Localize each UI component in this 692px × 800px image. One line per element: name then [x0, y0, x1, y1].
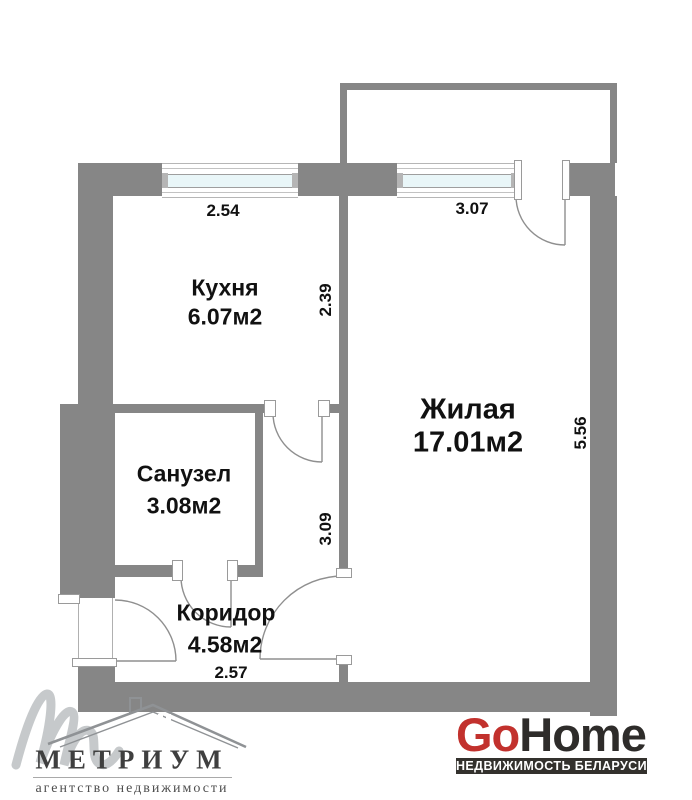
- dim-living-depth: 5.56: [571, 416, 591, 449]
- living-name: Жилая: [420, 394, 516, 427]
- metrium-tagline: агентство недвижимости: [35, 781, 228, 797]
- gohome-go: Go: [456, 708, 519, 761]
- house-window-dot: [158, 714, 163, 721]
- metrium-divider: [33, 777, 232, 778]
- gohome-wordmark: GoHome: [456, 711, 646, 758]
- balcony-door-post: [514, 160, 522, 200]
- living-area: 17.01м2: [413, 427, 523, 460]
- gohome-badge-text: НЕДВИЖИМОСТЬ БЕЛАРУСИ: [456, 759, 647, 773]
- balcony-door-arc: [516, 196, 565, 245]
- dim-hall-depth: 3.09: [316, 512, 336, 545]
- kitchen-door-post: [318, 400, 330, 417]
- metrium-logo: МЕТРИУМ агентство недвижимости: [10, 683, 260, 800]
- house-window-dot: [158, 725, 163, 732]
- bathroom-door-post: [172, 560, 183, 581]
- bathroom-name: Санузел: [137, 461, 232, 488]
- gohome-home: Home: [519, 708, 646, 761]
- dim-kitchen-width: 2.54: [206, 201, 239, 221]
- bathroom-door-post: [227, 560, 238, 581]
- entrance-door-post: [72, 658, 117, 667]
- entrance-door-post: [58, 594, 80, 604]
- dim-living-width: 3.07: [455, 199, 488, 219]
- gohome-logo: GoHome НЕДВИЖИМОСТЬ БЕЛАРУСИ: [450, 711, 692, 786]
- kitchen-door-post: [264, 400, 276, 417]
- dim-corridor-width: 2.57: [214, 663, 247, 683]
- kitchen-name: Кухня: [191, 275, 258, 302]
- house-window-dot: [166, 714, 171, 721]
- metrium-wordmark: МЕТРИУМ: [35, 745, 228, 776]
- dim-kitchen-depth: 2.39: [316, 283, 336, 316]
- corridor-area: 4.58м2: [188, 632, 263, 659]
- kitchen-door-arc: [273, 413, 322, 462]
- living-door-post: [336, 568, 352, 578]
- floor-plan: Кухня 6.07м2 Жилая 17.01м2 Санузел 3.08м…: [0, 0, 692, 800]
- balcony-door-post: [562, 160, 570, 200]
- house-window-dot: [166, 725, 171, 732]
- door-swing-layer: [0, 0, 692, 800]
- corridor-name: Коридор: [177, 600, 276, 627]
- bathroom-area: 3.08м2: [147, 493, 222, 520]
- gohome-badge: НЕДВИЖИМОСТЬ БЕЛАРУСИ: [456, 758, 647, 774]
- entrance-door-arc: [115, 600, 176, 661]
- living-door-post: [336, 655, 352, 665]
- kitchen-area: 6.07м2: [188, 304, 263, 331]
